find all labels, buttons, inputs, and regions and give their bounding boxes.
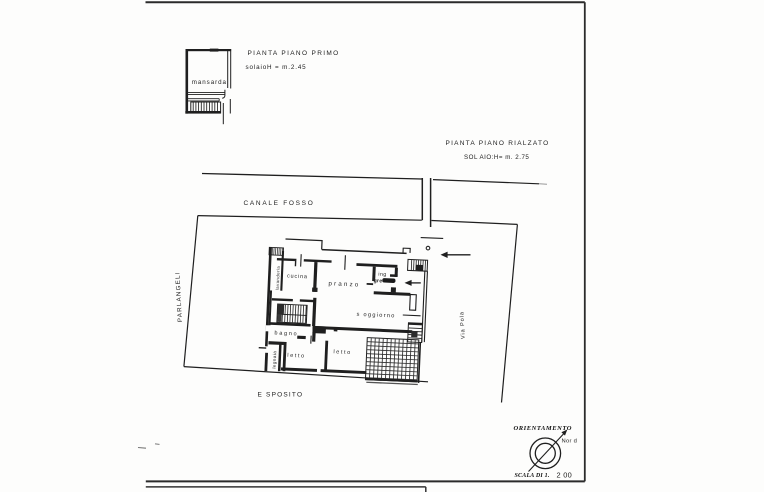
svg-text:pranzo: pranzo bbox=[328, 280, 360, 288]
svg-text:PIANTA PIANO PRIMO: PIANTA PIANO PRIMO bbox=[248, 50, 340, 57]
svg-text:SCALA DI 1.: SCALA DI 1. bbox=[515, 473, 550, 479]
svg-text:cucina: cucina bbox=[287, 273, 308, 280]
svg-text:gre: gre bbox=[373, 278, 382, 284]
svg-text:ing: ing bbox=[378, 272, 387, 278]
svg-text:letto: letto bbox=[333, 349, 352, 356]
svg-text:ORIENTAMENTO: ORIENTAMENTO bbox=[514, 425, 573, 432]
svg-text:CANALE FOSSO: CANALE FOSSO bbox=[244, 200, 315, 207]
svg-text:PIANTA PIANO RIALZATO: PIANTA PIANO RIALZATO bbox=[446, 140, 550, 147]
svg-text:Nor d: Nor d bbox=[562, 439, 578, 445]
svg-text:solaioH = m.2.45: solaioH = m.2.45 bbox=[246, 64, 307, 71]
svg-text:letto: letto bbox=[287, 353, 306, 360]
svg-text:mansarda: mansarda bbox=[192, 79, 227, 86]
svg-text:2 00: 2 00 bbox=[557, 471, 573, 480]
svg-text:bagno: bagno bbox=[274, 330, 298, 337]
svg-text:SOL AIO:H= m. 2.75: SOL AIO:H= m. 2.75 bbox=[464, 154, 529, 161]
svg-text:E SPOSITO: E SPOSITO bbox=[258, 392, 304, 399]
svg-text:lavanderia: lavanderia bbox=[275, 266, 281, 291]
svg-text:legnaia: legnaia bbox=[272, 351, 278, 369]
